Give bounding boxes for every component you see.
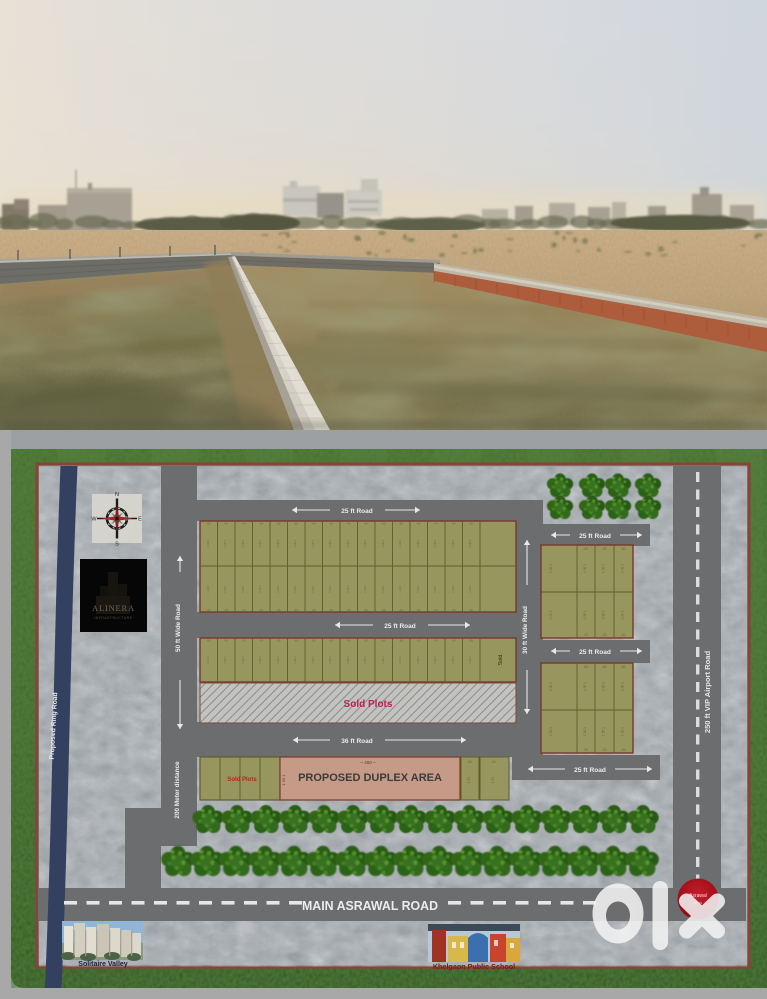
svg-text:1 30 1: 1 30 1 (241, 539, 245, 547)
svg-text:200 Meter distance: 200 Meter distance (174, 761, 181, 819)
svg-text:Sold Plots: Sold Plots (344, 699, 393, 710)
svg-text:1 30 1: 1 30 1 (583, 610, 587, 619)
svg-text:-20-: -20- (451, 608, 456, 612)
svg-text:-60-: -60- (602, 665, 608, 669)
svg-text:-60-: -60- (583, 547, 589, 551)
svg-text:1 30: 1 30 (467, 777, 471, 783)
svg-text:-20-: -20- (346, 608, 351, 612)
svg-text:-60-: -60- (381, 521, 386, 525)
svg-text:1 50 1: 1 50 1 (549, 682, 553, 691)
svg-text:-20-: -20- (329, 608, 334, 612)
svg-text:1 30 1: 1 30 1 (363, 656, 367, 664)
svg-text:25 ft Road: 25 ft Road (579, 533, 611, 540)
svg-text:-50-: -50- (491, 760, 497, 764)
svg-text:-60-: -60- (206, 638, 211, 642)
svg-text:-60-: -60- (451, 638, 456, 642)
svg-text:-20-: -20- (206, 608, 211, 612)
svg-text:1 30 1: 1 30 1 (206, 539, 210, 547)
svg-text:1 30 1: 1 30 1 (468, 539, 472, 547)
svg-text:-20-: -20- (241, 608, 246, 612)
svg-text:1 30 1: 1 30 1 (311, 539, 315, 547)
svg-text:-60-: -60- (434, 638, 439, 642)
svg-text:1 30 1: 1 30 1 (416, 656, 420, 664)
svg-text:1 30 1: 1 30 1 (416, 539, 420, 547)
svg-text:1 30 1: 1 30 1 (241, 585, 245, 593)
svg-text:-60-: -60- (364, 521, 369, 525)
svg-text:-20-: -20- (224, 608, 229, 612)
svg-text:-60-: -60- (329, 638, 334, 642)
svg-text:Khelgaon Public School: Khelgaon Public School (433, 962, 515, 971)
svg-text:1 30 1: 1 30 1 (276, 585, 280, 593)
svg-text:1 30 1: 1 30 1 (223, 585, 227, 593)
svg-text:-20-: -20- (259, 608, 264, 612)
svg-text:-60-: -60- (346, 521, 351, 525)
svg-text:-60-: -60- (259, 638, 264, 642)
svg-text:-60-: -60- (224, 638, 229, 642)
svg-text:1 30 1: 1 30 1 (258, 585, 262, 593)
svg-text:1 30 1: 1 30 1 (433, 539, 437, 547)
svg-text:1 30 1: 1 30 1 (621, 727, 625, 736)
svg-text:-20-: -20- (381, 608, 386, 612)
svg-text:-20-: -20- (294, 608, 299, 612)
svg-text:1 30 1: 1 30 1 (451, 539, 455, 547)
svg-text:-60-: -60- (364, 638, 369, 642)
svg-text:-60-: -60- (294, 638, 299, 642)
svg-text:-60-: -60- (381, 638, 386, 642)
svg-text:1 30 1: 1 30 1 (602, 727, 606, 736)
svg-text:36 ft Road: 36 ft Road (341, 738, 372, 745)
svg-text:1 30 1: 1 30 1 (416, 585, 420, 593)
svg-text:-60-: -60- (467, 760, 473, 764)
svg-text:Sold: Sold (498, 654, 504, 665)
svg-text:1 50 1: 1 50 1 (549, 564, 553, 573)
svg-text:-60-: -60- (311, 638, 316, 642)
svg-text:-60-: -60- (583, 665, 589, 669)
svg-text:-20-: -20- (602, 633, 608, 637)
svg-text:1 30 1: 1 30 1 (346, 656, 350, 664)
svg-text:-60-: -60- (329, 521, 334, 525)
svg-text:-60-: -60- (451, 521, 456, 525)
svg-text:1 30 1: 1 30 1 (451, 656, 455, 664)
svg-text:-60-: -60- (346, 638, 351, 642)
svg-text:1 30 1: 1 30 1 (346, 539, 350, 547)
svg-text:-60-: -60- (206, 521, 211, 525)
svg-text:1 30 1: 1 30 1 (433, 656, 437, 664)
svg-text:1 50 1: 1 50 1 (549, 610, 553, 619)
svg-text:-60-: -60- (259, 521, 264, 525)
svg-text:-60-: -60- (469, 638, 474, 642)
svg-text:-60-: -60- (241, 638, 246, 642)
svg-text:ALINERA: ALINERA (92, 603, 135, 613)
svg-text:1 30 1: 1 30 1 (602, 682, 606, 691)
svg-text:1 30 1: 1 30 1 (398, 585, 402, 593)
svg-text:W: W (91, 517, 97, 523)
svg-text:1 30 1: 1 30 1 (328, 585, 332, 593)
svg-text:S: S (115, 542, 119, 548)
svg-text:-60-: -60- (276, 638, 281, 642)
svg-text:1 30 1: 1 30 1 (381, 656, 385, 664)
svg-text:-60-: -60- (621, 665, 627, 669)
svg-text:1 30 1: 1 30 1 (621, 564, 625, 573)
svg-text:1 30 1: 1 30 1 (602, 564, 606, 573)
svg-text:1 30 1: 1 30 1 (258, 539, 262, 547)
svg-text:1 30 1: 1 30 1 (328, 656, 332, 664)
svg-text:1 30 1: 1 30 1 (311, 585, 315, 593)
svg-text:1 30 1: 1 30 1 (206, 656, 210, 664)
svg-text:1 30 1: 1 30 1 (621, 682, 625, 691)
svg-text:1 30 1: 1 30 1 (381, 585, 385, 593)
svg-text:MAIN ASRAWAL ROAD: MAIN ASRAWAL ROAD (302, 899, 438, 913)
svg-text:N: N (115, 492, 119, 498)
svg-text:1 30 1: 1 30 1 (346, 585, 350, 593)
svg-text:1 30 1: 1 30 1 (468, 656, 472, 664)
svg-text:-60-: -60- (276, 521, 281, 525)
svg-text:1 30 1: 1 30 1 (621, 610, 625, 619)
svg-text:1 30 1: 1 30 1 (583, 564, 587, 573)
svg-text:1 30 1: 1 30 1 (583, 727, 587, 736)
svg-text:30 ft Wide Road: 30 ft Wide Road (522, 606, 529, 654)
svg-text:-60-: -60- (469, 521, 474, 525)
svg-text:1 30 1: 1 30 1 (206, 585, 210, 593)
svg-text:1 30 1: 1 30 1 (398, 656, 402, 664)
svg-text:1 30 1: 1 30 1 (381, 539, 385, 547)
svg-text:1 30 1: 1 30 1 (363, 585, 367, 593)
svg-text:-20-: -20- (364, 608, 369, 612)
svg-text:-20-: -20- (416, 608, 421, 612)
svg-text:1 30 1: 1 30 1 (276, 539, 280, 547)
svg-text:1 30 1: 1 30 1 (468, 585, 472, 593)
svg-text:-60-: -60- (416, 638, 421, 642)
svg-text:-60-: -60- (416, 521, 421, 525)
svg-text:Sold Plots: Sold Plots (227, 777, 257, 783)
svg-text:1 30 1: 1 30 1 (451, 585, 455, 593)
svg-text:TERA QUYANA: TERA QUYANA (687, 944, 715, 949)
svg-text:1 30 1: 1 30 1 (293, 539, 297, 547)
svg-text:-20-: -20- (276, 608, 281, 612)
svg-text:1 50 1: 1 50 1 (549, 727, 553, 736)
svg-text:-20-: -20- (602, 748, 608, 752)
svg-text:1 90 1: 1 90 1 (281, 774, 286, 786)
svg-text:-20-: -20- (621, 748, 627, 752)
svg-text:-60-: -60- (294, 521, 299, 525)
svg-text:25 ft Road: 25 ft Road (384, 623, 415, 630)
svg-text:1 30 1: 1 30 1 (363, 539, 367, 547)
svg-text:1 30 1: 1 30 1 (328, 539, 332, 547)
svg-text:25 ft Road: 25 ft Road (341, 508, 372, 515)
svg-text:-20-: -20- (583, 748, 589, 752)
svg-text:PROPOSED DUPLEX AREA: PROPOSED DUPLEX AREA (298, 772, 442, 784)
svg-text:1 30 1: 1 30 1 (223, 539, 227, 547)
svg-text:Solitaire Valley: Solitaire Valley (78, 961, 128, 968)
svg-text:-60-: -60- (399, 638, 404, 642)
svg-text:1 30 1: 1 30 1 (433, 585, 437, 593)
svg-text:25 ft Road: 25 ft Road (574, 767, 606, 774)
svg-text:-20-: -20- (311, 608, 316, 612)
svg-text:-60-: -60- (224, 521, 229, 525)
svg-text:1 30 1: 1 30 1 (223, 656, 227, 664)
svg-text:1 30 1: 1 30 1 (583, 682, 587, 691)
svg-text:E: E (138, 517, 142, 523)
svg-text:-20-: -20- (434, 608, 439, 612)
svg-text:-60-: -60- (434, 521, 439, 525)
svg-text:-20-: -20- (583, 633, 589, 637)
svg-text:-60-: -60- (311, 521, 316, 525)
svg-text:~ 460 ~: ~ 460 ~ (360, 760, 376, 765)
svg-text:-60-: -60- (621, 547, 627, 551)
svg-text:1 30: 1 30 (491, 777, 495, 783)
svg-text:250 ft VIP Airport Road: 250 ft VIP Airport Road (703, 651, 712, 734)
svg-text:1 30 1: 1 30 1 (258, 656, 262, 664)
svg-text:1 30 1: 1 30 1 (398, 539, 402, 547)
svg-text:1 30 1: 1 30 1 (311, 656, 315, 664)
svg-text:-60-: -60- (241, 521, 246, 525)
svg-text:1 30 1: 1 30 1 (276, 656, 280, 664)
svg-text:1 30 1: 1 30 1 (293, 656, 297, 664)
svg-text:25 ft Road: 25 ft Road (579, 649, 611, 656)
svg-text:INFRASTRUCTURE: INFRASTRUCTURE (94, 616, 132, 620)
svg-text:-60-: -60- (602, 547, 608, 551)
svg-text:-60-: -60- (399, 521, 404, 525)
svg-text:1 30 1: 1 30 1 (241, 656, 245, 664)
svg-text:-20-: -20- (399, 608, 404, 612)
svg-text:1 30 1: 1 30 1 (602, 610, 606, 619)
svg-text:50 ft Wide Road: 50 ft Wide Road (175, 604, 182, 652)
svg-text:1 30 1: 1 30 1 (293, 585, 297, 593)
svg-text:-20-: -20- (621, 633, 627, 637)
svg-text:-20-: -20- (469, 608, 474, 612)
